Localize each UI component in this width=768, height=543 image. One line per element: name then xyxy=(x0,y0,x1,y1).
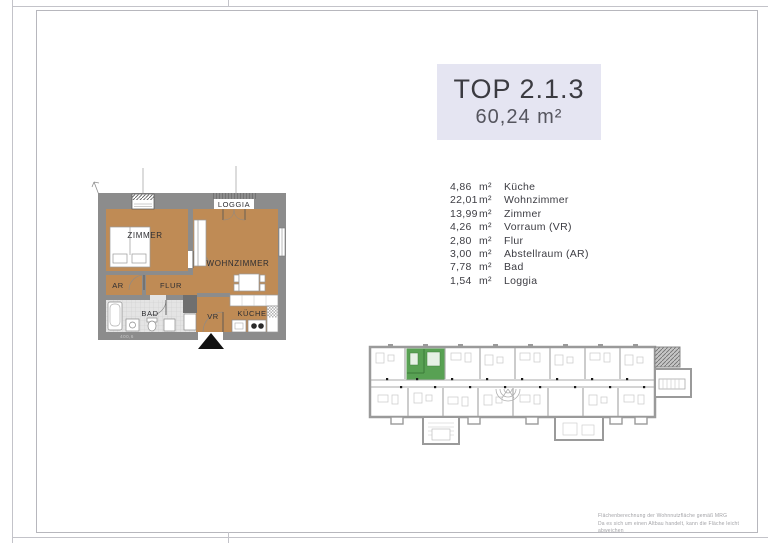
room-name: Flur xyxy=(504,235,680,248)
room-name: Bad xyxy=(504,261,680,274)
label-vr: VR xyxy=(207,312,219,321)
room-area: 13,99 xyxy=(450,208,479,221)
room-list: 4,86m²Küche 22,01m²Wohnzimmer 13,99m²Zim… xyxy=(450,181,680,288)
label-loggia: LOGGIA xyxy=(218,200,250,209)
label-bad: BAD xyxy=(141,309,158,318)
room-area: 4,26 xyxy=(450,221,479,234)
corner-survey-mark xyxy=(92,182,99,195)
room-area: 3,00 xyxy=(450,248,479,261)
building-overview-plan xyxy=(358,333,698,448)
flue-leader-lines xyxy=(143,166,236,193)
room-list-row: 4,86m²Küche xyxy=(450,181,680,194)
apartment-title: TOP 2.1.3 xyxy=(453,74,584,104)
room-list-row: 7,78m²Bad xyxy=(450,261,680,274)
room-area: 2,80 xyxy=(450,235,479,248)
annex-hatched xyxy=(655,347,680,367)
label-flur: FLUR xyxy=(160,281,182,290)
page-edge-top xyxy=(12,6,768,7)
room-unit: m² xyxy=(479,221,504,234)
fold-mark-bottom xyxy=(228,532,229,543)
washer xyxy=(164,319,175,331)
room-area: 4,86 xyxy=(450,181,479,194)
label-zimmer: ZIMMER xyxy=(127,231,162,240)
pillar xyxy=(183,295,197,313)
room-list-row: 22,01m²Wohnzimmer xyxy=(450,194,680,207)
room-unit: m² xyxy=(479,208,504,221)
room-name: Zimmer xyxy=(504,208,680,221)
room-name: Wohnzimmer xyxy=(504,194,680,207)
disclaimer-line-2: Da es sich um einen Altbau handelt, kann… xyxy=(598,521,754,536)
disclaimer-line-1: Flächenberechnung der Wohnnutzfläche gem… xyxy=(598,513,754,521)
room-area: 1,54 xyxy=(450,275,479,288)
chimney xyxy=(132,194,154,209)
room-area: 22,01 xyxy=(450,194,479,207)
annex-extension xyxy=(655,369,691,397)
disclaimer: Flächenberechnung der Wohnnutzfläche gem… xyxy=(598,513,754,536)
shaft-niche xyxy=(184,314,196,330)
room-list-row: 1,54m²Loggia xyxy=(450,275,680,288)
kitchen-sink xyxy=(268,307,278,318)
toilet xyxy=(147,318,157,331)
fold-mark-top xyxy=(228,0,229,7)
room-list-row: 2,80m²Flur xyxy=(450,235,680,248)
window xyxy=(279,228,285,256)
room-name: Abstellraum (AR) xyxy=(504,248,680,261)
page-edge-left xyxy=(12,0,13,543)
room-name: Vorraum (VR) xyxy=(504,221,680,234)
room-unit: m² xyxy=(479,248,504,261)
room-area: 7,78 xyxy=(450,261,479,274)
room-name: Loggia xyxy=(504,275,680,288)
room-unit: m² xyxy=(479,261,504,274)
apartment-total-area: 60,24 m² xyxy=(476,104,563,130)
room-list-row: 4,26m²Vorraum (VR) xyxy=(450,221,680,234)
label-kueche: KÜCHE xyxy=(237,309,266,318)
room-unit: m² xyxy=(479,235,504,248)
room-unit: m² xyxy=(479,181,504,194)
label-ar: AR xyxy=(112,281,124,290)
dimension-note: 400,6 xyxy=(120,334,134,339)
apartment-title-box: TOP 2.1.3 60,24 m² xyxy=(437,64,601,140)
kitchen-appliance xyxy=(232,320,246,332)
room-list-row: 13,99m²Zimmer xyxy=(450,208,680,221)
sink xyxy=(126,319,139,331)
highlighted-unit xyxy=(407,349,445,380)
room-unit: m² xyxy=(479,194,504,207)
bathtub xyxy=(108,302,122,330)
apartment-floorplan: 400,6 ZIMMER WOHNZIMMER LOGGIA AR FLUR B… xyxy=(86,163,296,353)
label-wohnzimmer: WOHNZIMMER xyxy=(207,259,270,268)
cooktop xyxy=(248,320,266,332)
sofa xyxy=(194,220,206,266)
room-list-row: 3,00m²Abstellraum (AR) xyxy=(450,248,680,261)
room-unit: m² xyxy=(479,275,504,288)
room-name: Küche xyxy=(504,181,680,194)
page-edge-bottom xyxy=(12,537,768,538)
